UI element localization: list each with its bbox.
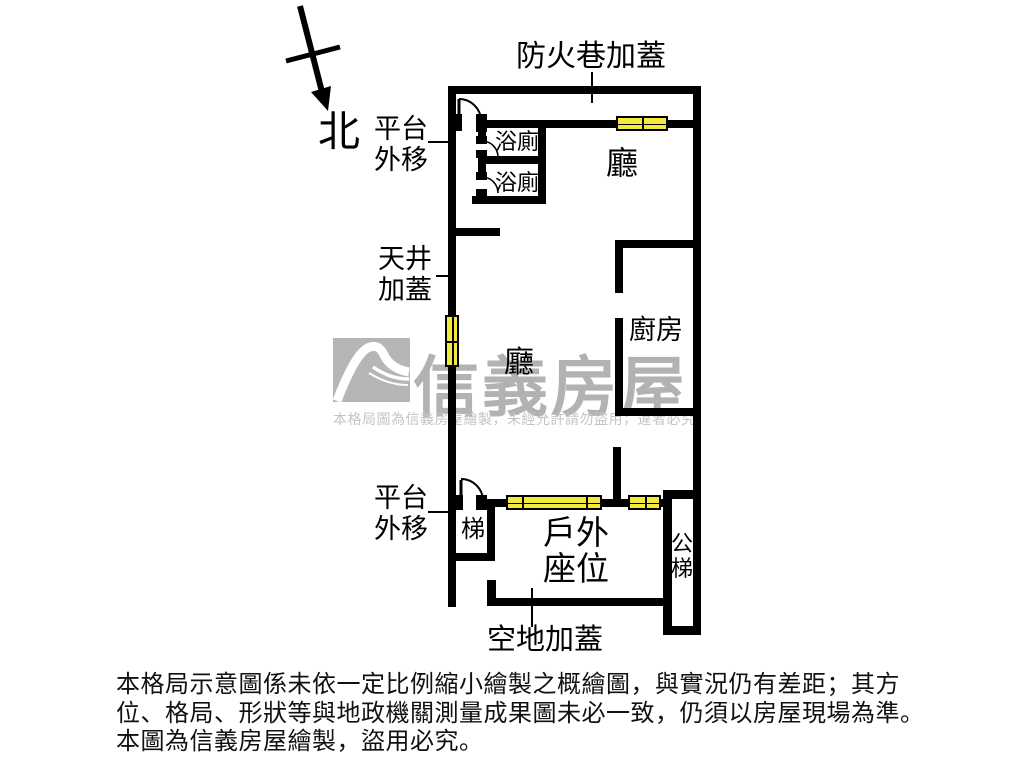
label-open-land: 空地加蓋 — [487, 625, 603, 656]
label-platform-top: 平台外移 — [374, 114, 428, 176]
label-north: 北 — [318, 111, 360, 156]
label-kitchen: 廚房 — [629, 316, 683, 345]
label-platform-bottom: 平台外移 — [374, 483, 428, 545]
label-skylight: 天井加蓋 — [378, 244, 432, 306]
label-bath-2: 浴廁 — [495, 171, 539, 195]
floor-plan: 信義房屋 本格局圖為信義房屋繪製，未經允許請勿盜用，違者必究 — [0, 0, 1024, 768]
entry-door-top-icon — [451, 99, 487, 132]
entry-door-bottom-icon — [452, 479, 487, 510]
disclaimer-text: 本格局示意圖係未依一定比例縮小繪製之概繪圖，與實況仍有差距；其方位、格局、形狀等… — [116, 671, 926, 757]
label-hall-center: 廳 — [504, 347, 534, 379]
label-public-stairs: 公梯 — [671, 531, 693, 581]
label-fire-lane: 防火巷加蓋 — [516, 41, 666, 73]
north-arrow-icon — [286, 6, 340, 111]
label-stairs: 梯 — [461, 518, 485, 544]
label-outdoor-seating: 戶外座位 — [543, 516, 609, 588]
label-bath-1: 浴廁 — [495, 130, 539, 154]
label-hall-top: 廳 — [606, 146, 638, 180]
